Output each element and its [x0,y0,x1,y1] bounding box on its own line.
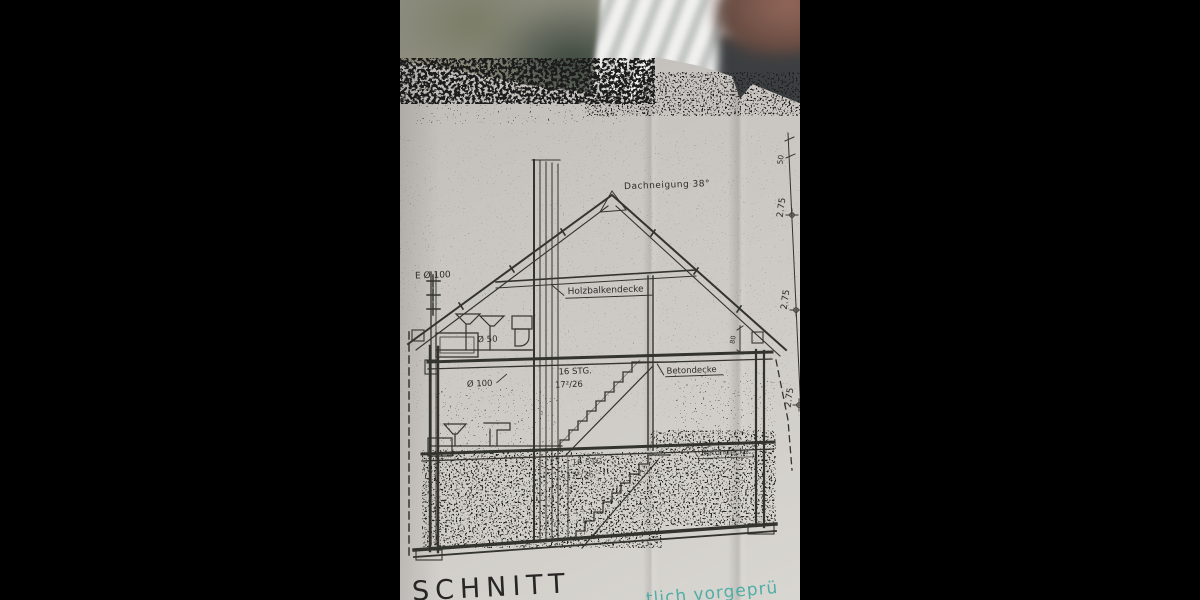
label-vent-stack: E Ø 100 [415,269,451,281]
screenshot: 50 2.75 2.75 2.75 80 Dachneigung 38° Hol… [0,0,1200,600]
approval-stamp: tlich vorgeprü [645,578,779,600]
label-stairs-upper-count: 16 STG. [558,366,592,377]
photo-of-blueprint: 50 2.75 2.75 2.75 80 Dachneigung 38° Hol… [400,0,800,600]
label-stairs-lower-ratio: 17²/26 [566,470,594,481]
label-ceiling-lower: Betondecke [701,447,749,458]
section-drawing: 50 2.75 2.75 2.75 80 Dachneigung 38° Hol… [400,0,800,600]
vent-pipe-crosses [427,275,440,315]
label-pipe-100: Ø 100 [467,378,493,390]
label-pipe-50: Ø 50 [477,334,498,346]
label-stairs-lower-count: 16 STG. [571,457,605,468]
toner-noise [400,58,800,548]
dim-top: 50 [775,154,785,165]
drawing-title: SCHNITT [411,568,571,600]
knee-wall-dim: 80 [728,335,737,345]
label-stairs-upper-ratio: 17²/26 [555,380,583,391]
